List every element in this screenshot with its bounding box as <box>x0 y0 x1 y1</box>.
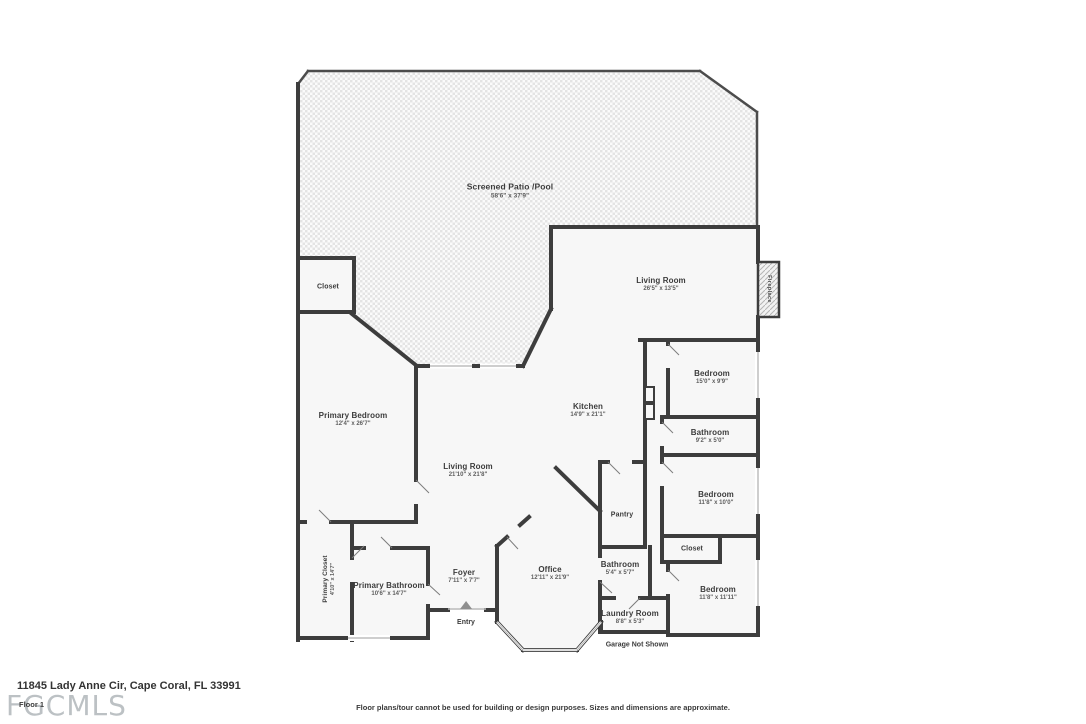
entry-marker: Entry <box>457 601 475 629</box>
room-name: Bathroom <box>691 428 730 438</box>
room-dims: 7'11" x 7'7" <box>448 578 480 586</box>
room-name: Laundry Room <box>601 609 659 619</box>
room-name: Screened Patio /Pool <box>467 181 554 192</box>
room-dims: 8'8" x 5'3" <box>601 619 659 627</box>
room-name: Bedroom <box>698 490 734 500</box>
room-label-closet-2: Closet <box>681 544 703 553</box>
room-dims: 14'9" x 21'1" <box>570 412 605 420</box>
room-name: Primary Closet <box>322 555 330 602</box>
room-dims: 12'11" x 21'9" <box>531 575 569 583</box>
room-name: Living Room <box>443 462 493 472</box>
room-dims: 5'4" x 5'7" <box>601 570 640 578</box>
room-name: Bedroom <box>699 585 737 595</box>
entry-label: Entry <box>457 619 475 626</box>
property-address: 11845 Lady Anne Cir, Cape Coral, FL 3399… <box>17 680 241 692</box>
room-label-office: Office 12'11" x 21'9" <box>531 565 569 583</box>
room-dims: 15'0" x 9'9" <box>694 379 730 387</box>
room-dims: 11'8" x 11'11" <box>699 595 737 603</box>
floorplan-canvas: Screened Patio /Pool 58'6" x 37'9" Livin… <box>0 0 1086 724</box>
room-label-kitchen: Kitchen 14'9" x 21'1" <box>570 402 605 420</box>
room-label-closet-1: Closet <box>317 282 339 291</box>
room-label-bathroom-2: Bathroom 5'4" x 5'7" <box>601 560 640 578</box>
room-name: Closet <box>681 544 703 553</box>
room-name: Foyer <box>448 568 480 578</box>
room-label-living-room-1: Living Room 26'5" x 13'5" <box>636 276 686 294</box>
entry-arrow-icon <box>460 601 472 609</box>
room-dims: 11'8" x 10'0" <box>698 500 734 508</box>
room-dims: 21'10" x 21'8" <box>443 472 493 480</box>
fireplace-label: Fireplace <box>766 275 772 303</box>
garage-note: Garage Not Shown <box>606 642 669 649</box>
room-name: Closet <box>317 282 339 291</box>
room-label-primary-closet: Primary Closet 4'10" x 14'7" <box>322 555 338 602</box>
disclaimer-text: Floor plans/tour cannot be used for buil… <box>356 703 730 712</box>
room-label-screened-patio: Screened Patio /Pool 58'6" x 37'9" <box>467 181 554 200</box>
room-name: Kitchen <box>570 402 605 412</box>
room-label-pantry: Pantry <box>611 510 633 519</box>
room-name: Bathroom <box>601 560 640 570</box>
room-label-bathroom-1: Bathroom 9'2" x 5'0" <box>691 428 730 446</box>
room-name: Primary Bathroom <box>353 581 424 591</box>
room-dims: 26'5" x 13'5" <box>636 286 686 294</box>
room-label-foyer: Foyer 7'11" x 7'7" <box>448 568 480 586</box>
floorplan-drawing <box>0 0 1086 724</box>
room-name: Office <box>531 565 569 575</box>
room-name: Bedroom <box>694 369 730 379</box>
room-name: Pantry <box>611 510 633 519</box>
room-label-laundry-room: Laundry Room 8'8" x 5'3" <box>601 609 659 627</box>
room-name: Primary Bedroom <box>319 411 388 421</box>
room-label-living-room-2: Living Room 21'10" x 21'8" <box>443 462 493 480</box>
room-label-bedroom-3: Bedroom 11'8" x 11'11" <box>699 585 737 603</box>
room-label-bedroom-2: Bedroom 11'8" x 10'0" <box>698 490 734 508</box>
room-name: Living Room <box>636 276 686 286</box>
room-dims: 10'6" x 14'7" <box>353 591 424 599</box>
floor-label: Floor 1 <box>19 700 44 709</box>
room-dims: 12'4" x 26'7" <box>319 421 388 429</box>
room-label-primary-bedroom: Primary Bedroom 12'4" x 26'7" <box>319 411 388 429</box>
room-dims: 58'6" x 37'9" <box>467 192 554 200</box>
room-dims: 4'10" x 14'7" <box>331 555 338 602</box>
room-label-bedroom-1: Bedroom 15'0" x 9'9" <box>694 369 730 387</box>
room-label-primary-bathroom: Primary Bathroom 10'6" x 14'7" <box>353 581 424 599</box>
room-dims: 9'2" x 5'0" <box>691 438 730 446</box>
kitchen-counters <box>645 387 654 419</box>
